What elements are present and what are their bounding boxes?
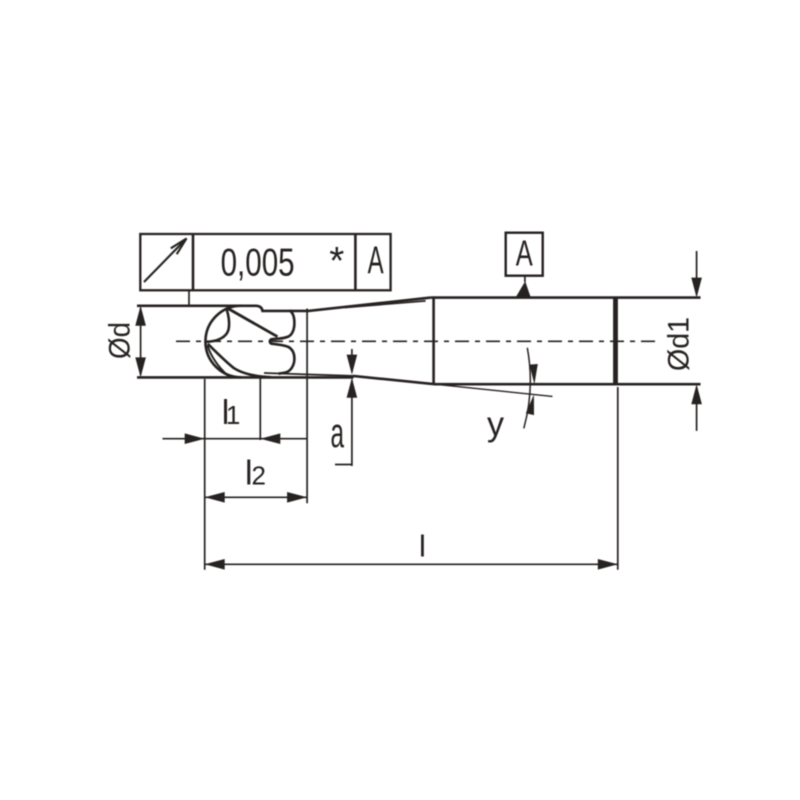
svg-text:1: 1 — [226, 400, 240, 430]
svg-text:A: A — [516, 233, 534, 274]
svg-text:0,005: 0,005 — [221, 242, 295, 285]
svg-text:A: A — [368, 240, 384, 283]
svg-text:y: y — [487, 406, 504, 444]
svg-text:2: 2 — [252, 461, 266, 491]
svg-text:Ød: Ød — [104, 322, 137, 359]
svg-text:l: l — [419, 529, 426, 564]
svg-text:a: a — [331, 409, 345, 456]
svg-text:Ød1: Ød1 — [663, 317, 696, 371]
svg-text:*: * — [329, 240, 344, 283]
